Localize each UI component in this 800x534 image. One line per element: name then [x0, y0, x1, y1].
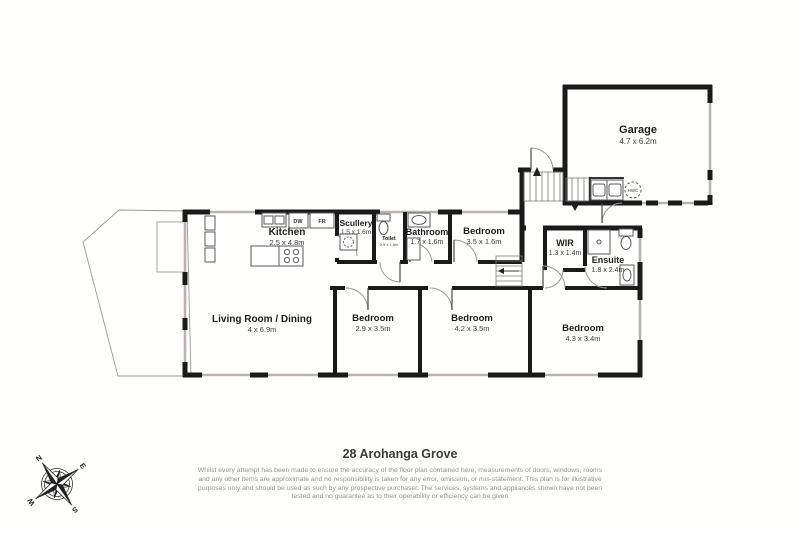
svg-text:Bedroom: Bedroom [352, 313, 394, 324]
svg-text:3.5 x 1.6m: 3.5 x 1.6m [466, 237, 501, 246]
entry-stairs [524, 167, 563, 201]
svg-text:4.3 x 3.4m: 4.3 x 3.4m [565, 334, 600, 343]
toilet-cistern-icon [377, 214, 390, 221]
svg-text:Ensuite: Ensuite [592, 255, 625, 265]
svg-text:4 x 6.9m: 4 x 6.9m [248, 325, 277, 334]
room-label-bedroom-top: Bedroom 3.5 x 1.6m [463, 226, 505, 246]
room-label-toilet: Toilet 0.9 x 1.6m [380, 236, 399, 247]
fridge-label: FR [318, 219, 325, 225]
room-label-bedroom3: Bedroom 4.2 x 3.5m [451, 313, 493, 333]
svg-text:4.7 x 6.2m: 4.7 x 6.2m [619, 137, 657, 146]
svg-text:Bedroom: Bedroom [451, 313, 493, 324]
svg-text:Garage: Garage [619, 124, 657, 136]
compass-south-label: S [70, 505, 79, 515]
ensuite-toilet-pan-icon [621, 237, 631, 250]
hwc-label: HWC [628, 188, 638, 193]
svg-text:WIR: WIR [556, 238, 574, 248]
room-label-bedroom4: Bedroom 4.3 x 3.4m [562, 323, 604, 343]
svg-text:4.2 x 3.5m: 4.2 x 3.5m [454, 324, 489, 333]
svg-text:Kitchen: Kitchen [269, 227, 306, 238]
floor-plan-page: DW FR HWC Garage 4.7 x 6.2m [0, 0, 800, 534]
room-label-scullery: Scullery 1.5 x 1.6m [339, 218, 372, 236]
svg-text:0.9 x 1.6m: 0.9 x 1.6m [380, 242, 399, 247]
room-label-bedroom2: Bedroom 2.9 x 3.5m [352, 313, 394, 333]
room-label-ensuite: Ensuite 1.8 x 2.4m [592, 255, 625, 274]
deck-outline [83, 210, 191, 376]
ensuite-toilet-cistern-icon [619, 229, 633, 236]
garage-stairs [566, 178, 589, 211]
svg-text:1.8 x 2.4m: 1.8 x 2.4m [592, 267, 625, 274]
room-label-kitchen: Kitchen 2.5 x 4.8m [269, 227, 306, 247]
room-label-garage: Garage 4.7 x 6.2m [619, 124, 657, 146]
svg-text:1.5 x 1.6m: 1.5 x 1.6m [341, 229, 371, 236]
compass-west-label: W [25, 496, 37, 508]
svg-text:Living Room / Dining: Living Room / Dining [212, 314, 312, 325]
svg-text:1.3 x 1.4m: 1.3 x 1.4m [549, 250, 582, 257]
svg-text:2.5 x 4.8m: 2.5 x 4.8m [269, 238, 304, 247]
dishwasher-label: DW [293, 219, 303, 225]
toilet-pan-icon [379, 222, 388, 235]
svg-text:Bedroom: Bedroom [562, 323, 604, 334]
svg-text:Bathroom: Bathroom [406, 227, 449, 237]
plan-title: 28 Arohanga Grove [0, 447, 800, 461]
svg-text:1.7 x 1.6m: 1.7 x 1.6m [411, 239, 444, 246]
compass-east-label: E [78, 461, 88, 470]
svg-text:2.9 x 3.5m: 2.9 x 3.5m [355, 324, 390, 333]
room-label-bathroom: Bathroom 1.7 x 1.6m [406, 227, 449, 246]
disclaimer-text: Whilst every attempt has been made to en… [192, 467, 608, 502]
svg-text:Bedroom: Bedroom [463, 226, 505, 237]
room-label-wir: WIR 1.3 x 1.4m [549, 238, 582, 257]
island-bench-icon [251, 246, 303, 266]
room-label-living: Living Room / Dining 4 x 6.9m [212, 314, 312, 334]
scullery-fixtures [340, 234, 357, 250]
svg-text:Scullery: Scullery [339, 218, 372, 228]
